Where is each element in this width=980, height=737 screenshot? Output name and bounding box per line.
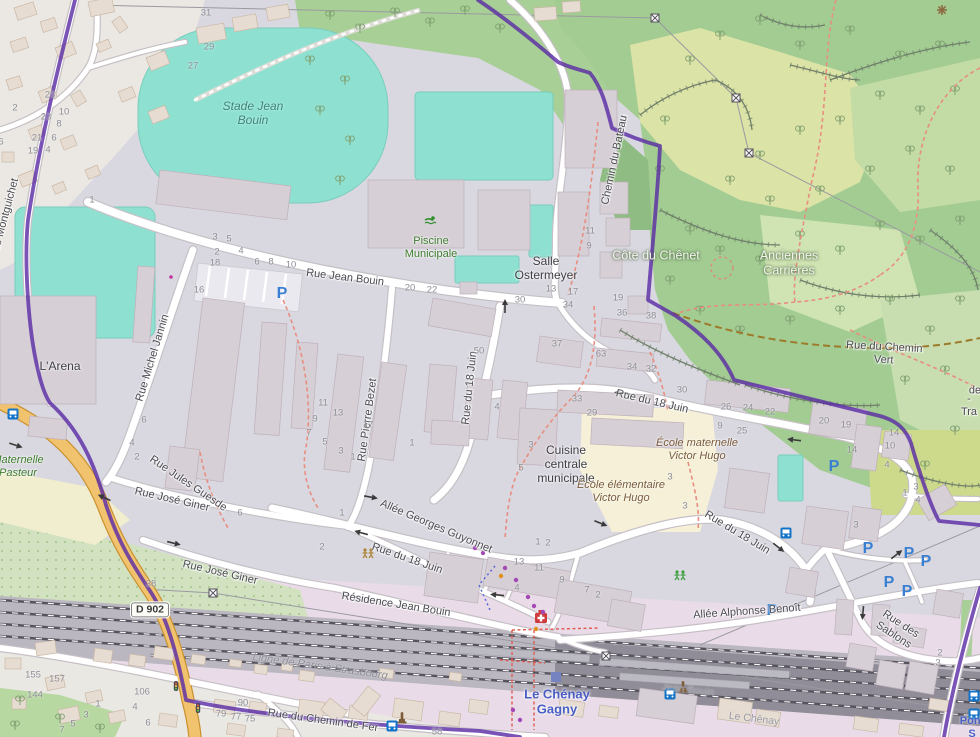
svg-text:P: P: [863, 540, 874, 557]
dot-purple-icon: [518, 718, 522, 722]
viewpoint-icon: [937, 5, 947, 15]
map-canvas[interactable]: PPPPPPPP Le Chénay Gagny Rue Jean BouinR…: [0, 0, 980, 737]
traffic-light-icon: [174, 681, 178, 691]
svg-text:P: P: [767, 602, 778, 619]
dot-orange-icon: [499, 574, 503, 578]
bus-icon: [781, 528, 792, 539]
parking-icon: P: [884, 574, 895, 591]
parking-icon: P: [767, 602, 778, 619]
bus-icon: [969, 709, 980, 720]
svg-text:P: P: [902, 583, 913, 600]
dot-magenta-icon: [169, 275, 173, 279]
svg-text:P: P: [277, 285, 288, 302]
pylon-icon: [745, 149, 753, 157]
dot-purple-icon: [514, 578, 518, 582]
dot-purple-icon: [473, 546, 477, 550]
svg-text:P: P: [829, 458, 840, 475]
dot-purple-icon: [532, 604, 536, 608]
parking-icon: P: [829, 458, 840, 475]
parking-icon: P: [277, 285, 288, 302]
bus-icon: [8, 409, 19, 420]
dot-purple-icon: [541, 610, 545, 614]
map-graphics: PPPPPPPP: [0, 0, 980, 737]
pylon-icon: [651, 14, 659, 22]
svg-text:P: P: [884, 574, 895, 591]
dot-purple-icon: [481, 551, 485, 555]
bus-icon: [387, 721, 398, 732]
dot-purple-icon: [511, 708, 515, 712]
parking-icon: P: [902, 583, 913, 600]
traffic-light-icon: [196, 703, 200, 713]
dot-orange-icon: [534, 627, 538, 631]
bus-icon: [969, 691, 980, 702]
parking-icon: P: [904, 545, 915, 562]
svg-text:P: P: [921, 553, 932, 570]
station-square-icon: [551, 672, 561, 682]
svg-text:P: P: [904, 545, 915, 562]
dot-purple-icon: [503, 566, 507, 570]
bus-icon: [665, 689, 676, 700]
pylon-icon: [209, 589, 217, 597]
pylon-icon: [602, 652, 610, 660]
parking-icon: P: [863, 540, 874, 557]
pylon-icon: [732, 94, 740, 102]
dot-purple-icon: [526, 595, 530, 599]
parking-icon: P: [921, 553, 932, 570]
